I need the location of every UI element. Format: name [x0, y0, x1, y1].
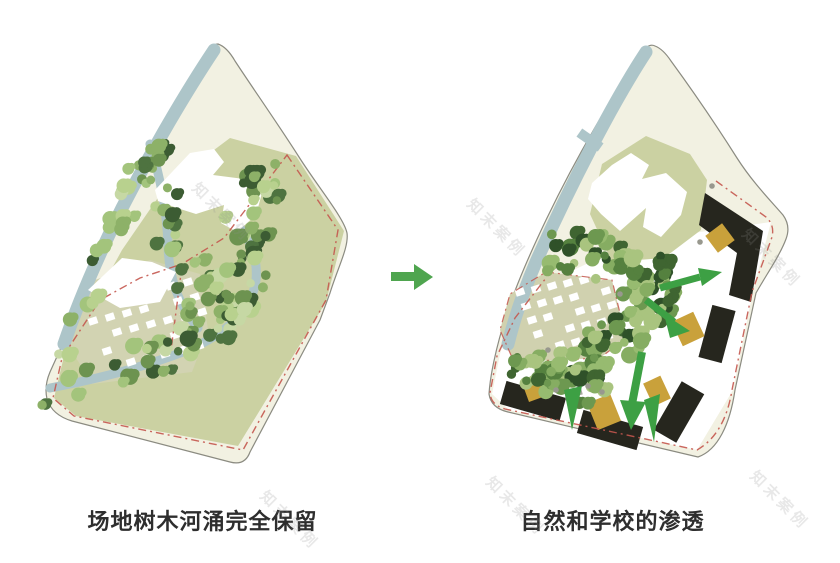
transform-arrow-icon — [391, 264, 433, 290]
left-site-plan — [37, 44, 347, 463]
diagram-canvas: 场地树木河涌完全保留 自然和学校的渗透 知末案例 知末案例 知末案例 知末案例 … — [0, 0, 840, 563]
site-plan-diagrams — [0, 0, 840, 563]
left-caption: 场地树木河涌完全保留 — [60, 504, 345, 536]
right-caption: 自然和学校的渗透 — [470, 504, 755, 536]
right-site-plan — [489, 45, 788, 457]
